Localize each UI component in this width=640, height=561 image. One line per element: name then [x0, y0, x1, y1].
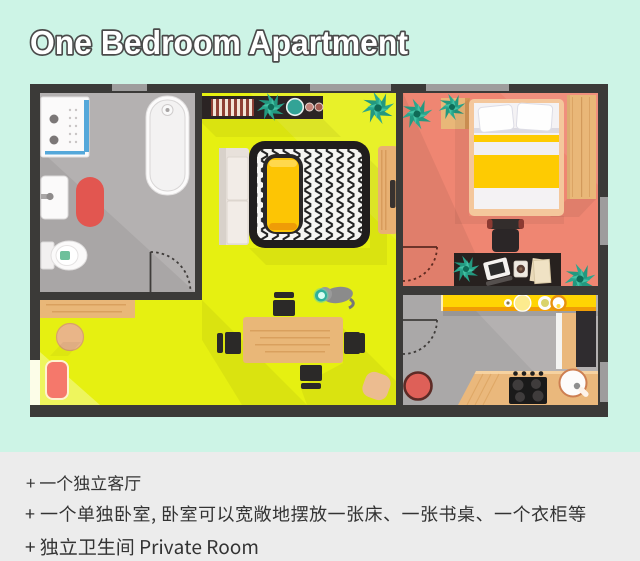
- svg-text:One Bedroom Apartment: One Bedroom Apartment: [30, 24, 408, 61]
